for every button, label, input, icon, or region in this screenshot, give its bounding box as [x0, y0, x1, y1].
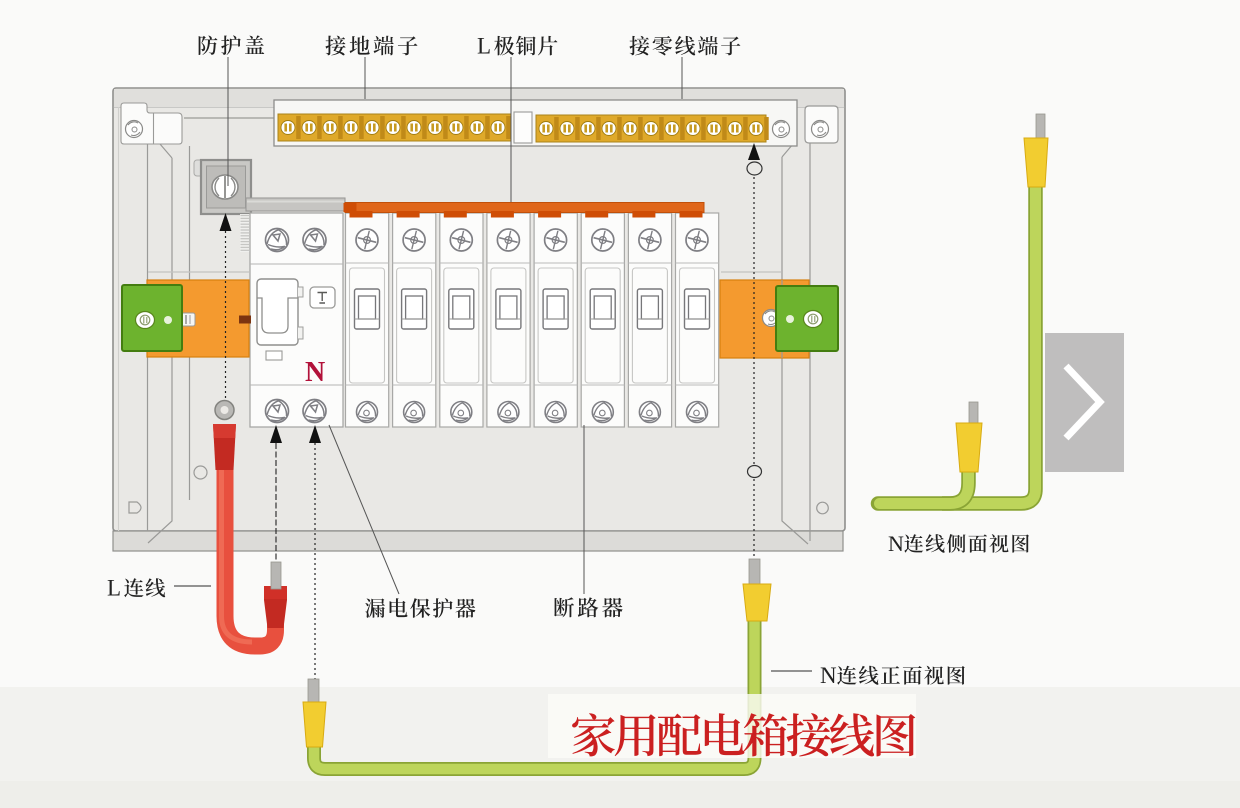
- svg-text:N: N: [888, 531, 904, 556]
- svg-text:L: L: [477, 34, 491, 59]
- svg-text:N: N: [820, 663, 837, 688]
- svg-text:L: L: [107, 576, 121, 601]
- svg-text:N: N: [305, 357, 325, 388]
